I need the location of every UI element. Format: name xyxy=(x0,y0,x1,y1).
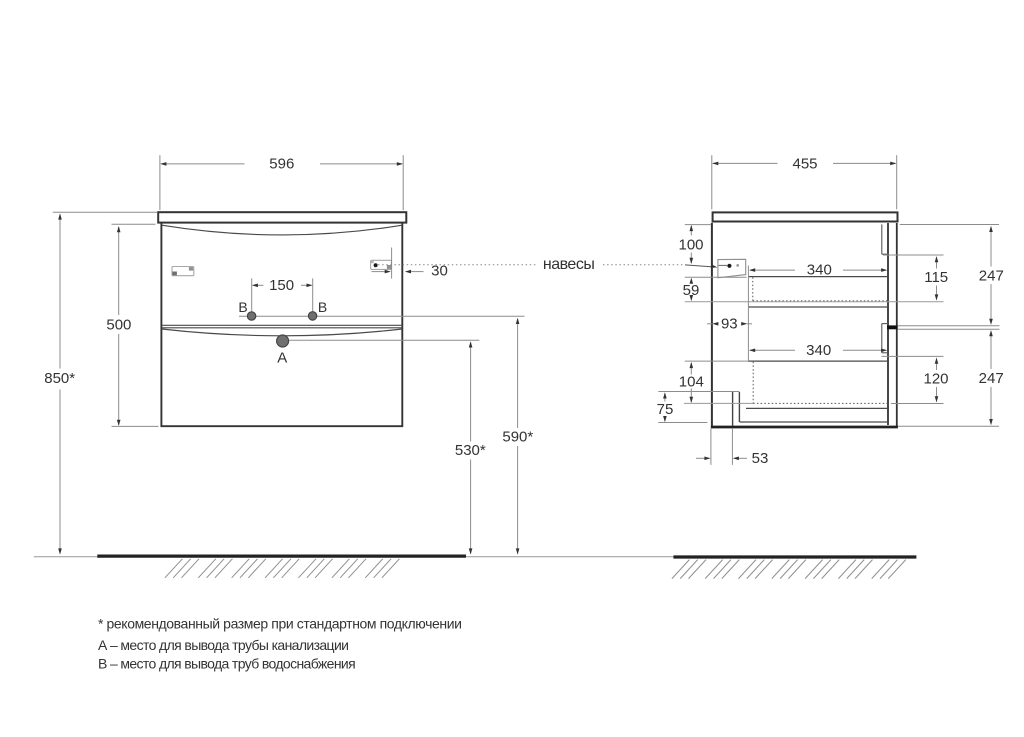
svg-text:340: 340 xyxy=(806,342,831,359)
svg-text:590*: 590* xyxy=(502,429,533,446)
svg-text:500: 500 xyxy=(106,316,131,333)
svg-text:А – место для вывода трубы кан: А – место для вывода трубы канализации xyxy=(98,637,348,653)
svg-text:120: 120 xyxy=(923,371,948,388)
svg-text:530*: 530* xyxy=(455,442,486,459)
svg-text:247: 247 xyxy=(979,370,1004,387)
svg-text:596: 596 xyxy=(269,156,294,173)
svg-text:В – место для вывода труб водо: В – место для вывода труб водоснабжения xyxy=(98,656,355,672)
svg-text:В: В xyxy=(318,299,327,315)
svg-text:100: 100 xyxy=(678,236,703,253)
svg-text:850*: 850* xyxy=(44,370,75,387)
svg-text:93: 93 xyxy=(721,316,738,333)
svg-text:150: 150 xyxy=(269,277,294,294)
svg-text:247: 247 xyxy=(979,267,1004,284)
svg-text:59: 59 xyxy=(683,282,700,299)
svg-text:В: В xyxy=(238,299,247,315)
svg-text:455: 455 xyxy=(792,155,817,172)
svg-text:75: 75 xyxy=(657,401,674,418)
svg-text:А: А xyxy=(277,350,287,367)
svg-text:навесы: навесы xyxy=(543,256,594,273)
svg-text:104: 104 xyxy=(679,374,704,391)
svg-text:340: 340 xyxy=(807,262,832,279)
svg-text:53: 53 xyxy=(752,450,769,467)
svg-text:* рекомендованный размер при с: * рекомендованный размер при стандартном… xyxy=(98,616,462,632)
svg-text:115: 115 xyxy=(924,269,948,286)
